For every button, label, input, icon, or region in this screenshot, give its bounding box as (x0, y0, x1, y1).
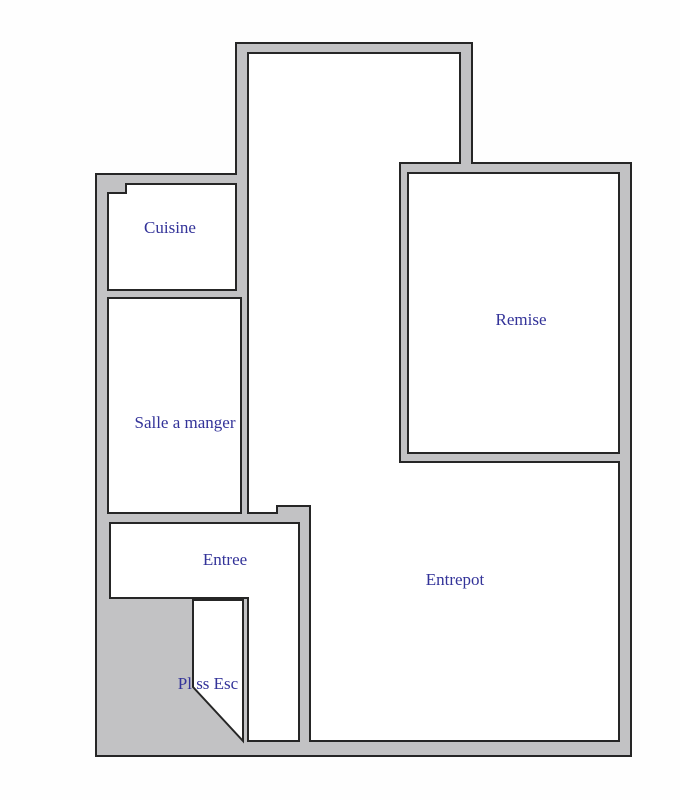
room-label-palier-sous-escalier: Pl ss Esc (178, 674, 239, 693)
room-label-cuisine: Cuisine (144, 218, 196, 237)
room-label-remise: Remise (496, 310, 547, 329)
room-label-entrepot: Entrepot (426, 570, 485, 589)
room-label-salle-a-manger: Salle a manger (134, 413, 235, 432)
room-area-cuisine (108, 184, 236, 290)
floor-plan-canvas: Cuisine Salle a manger Remise Entree Ent… (0, 0, 680, 800)
room-area-salle-a-manger (108, 298, 241, 513)
room-label-entree: Entree (203, 550, 247, 569)
floor-plan: Cuisine Salle a manger Remise Entree Ent… (0, 0, 680, 800)
